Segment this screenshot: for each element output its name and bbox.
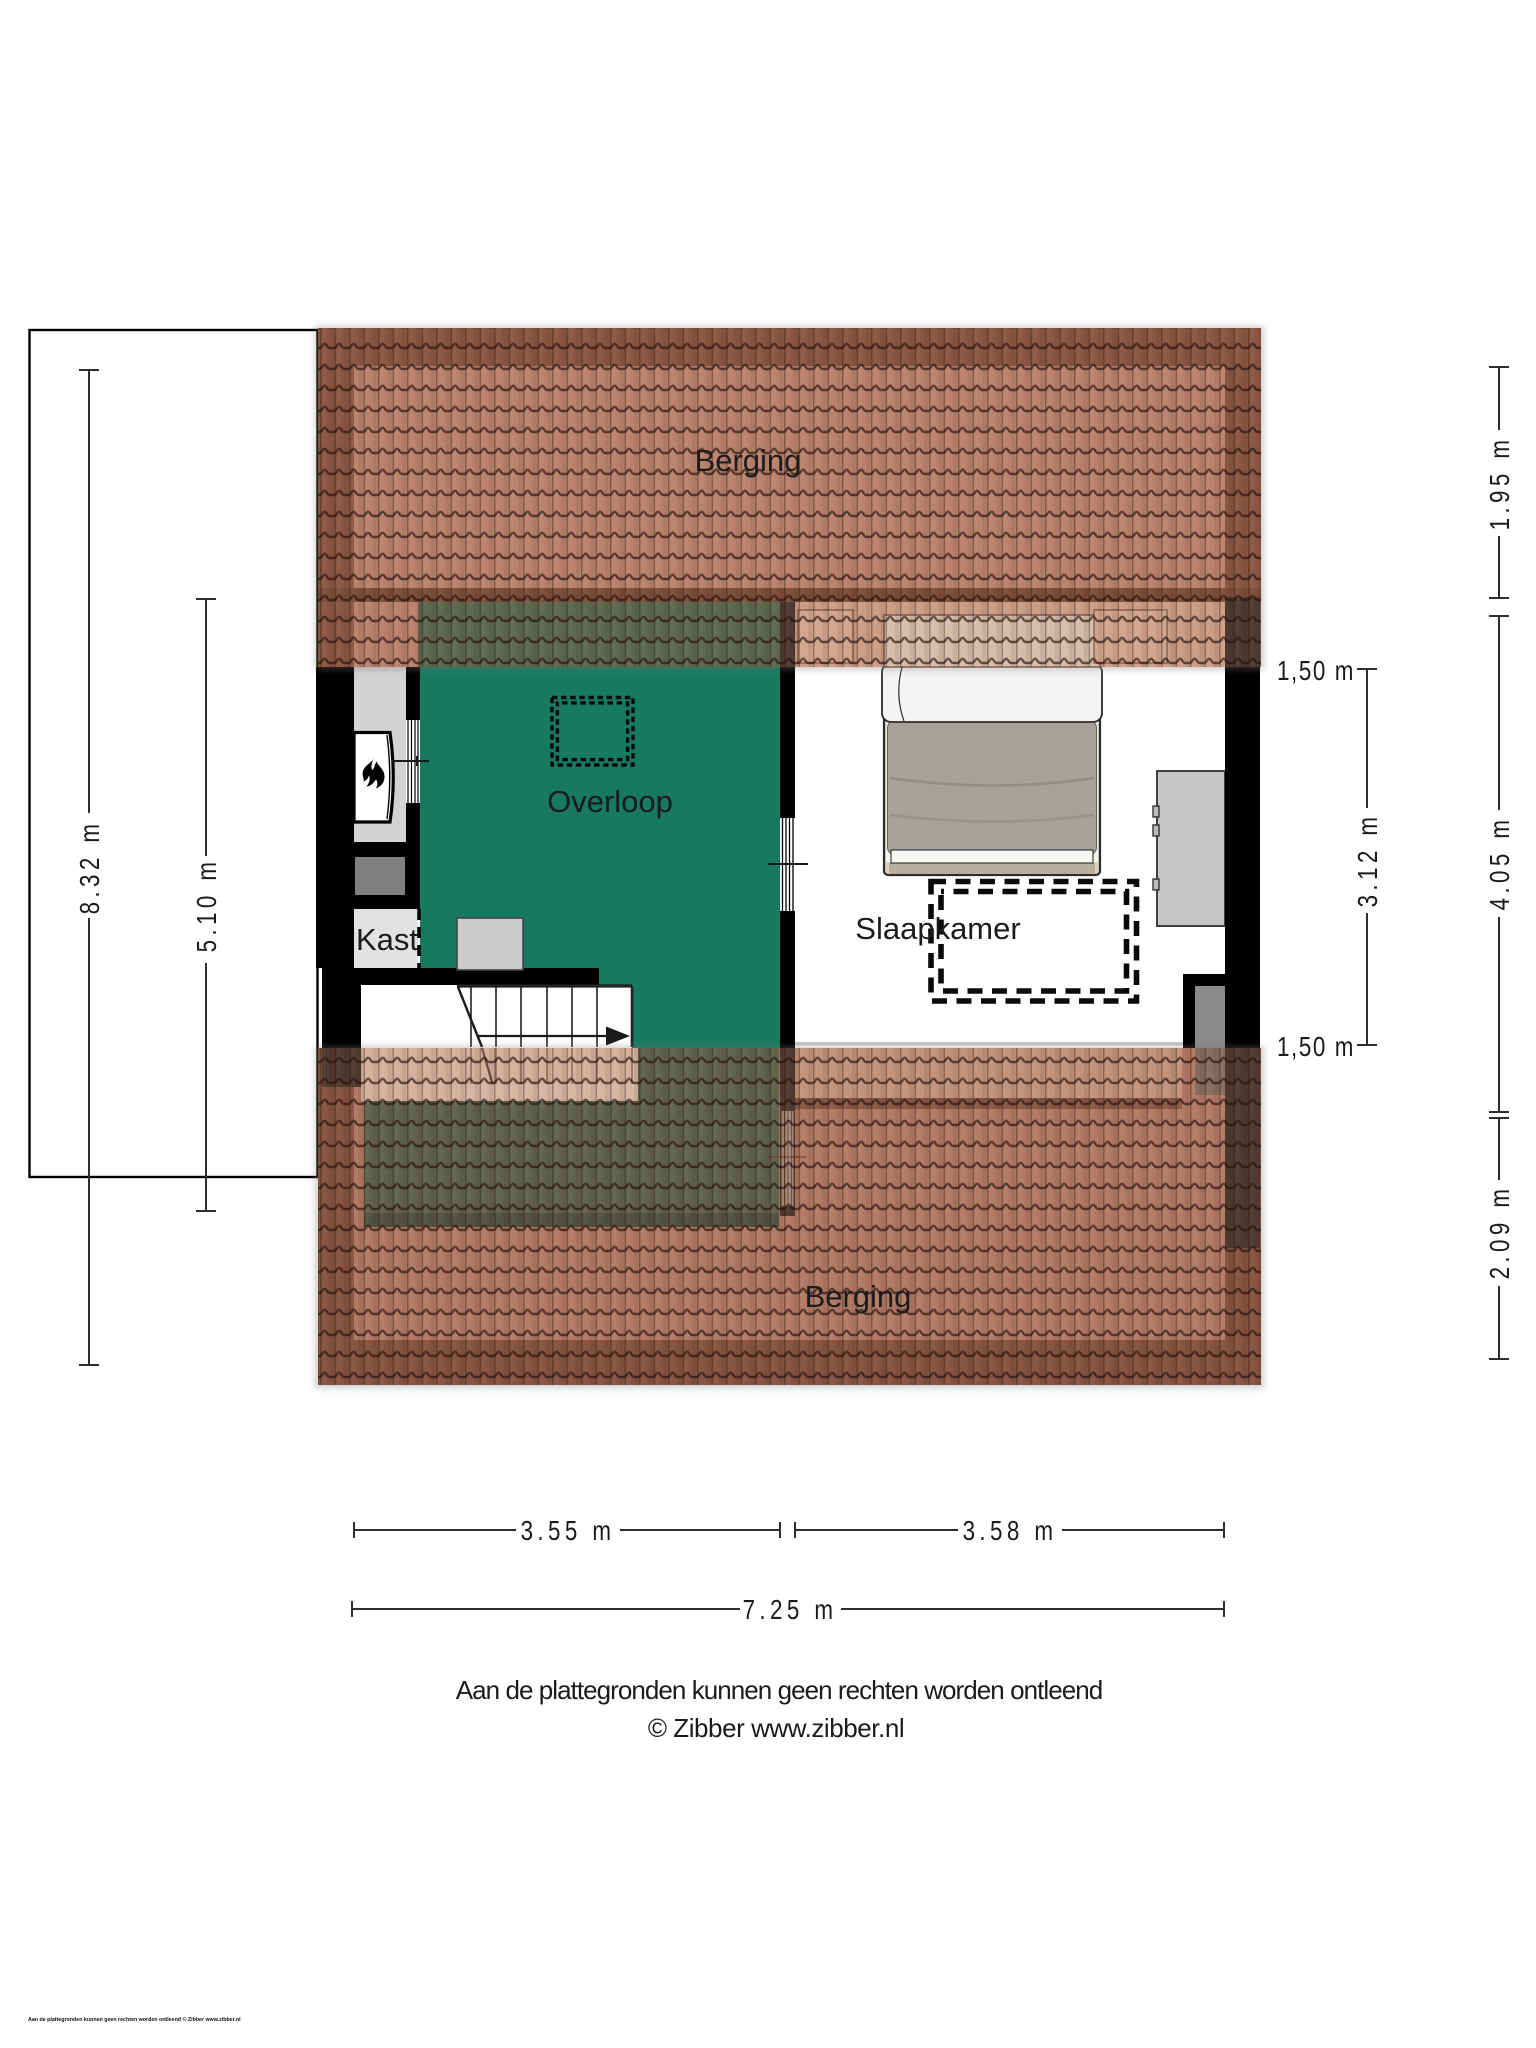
svg-text:1,50 m: 1,50 m (1277, 1032, 1355, 1063)
svg-text:2.09 m: 2.09 m (1485, 1185, 1516, 1280)
svg-text:1.95 m: 1.95 m (1485, 436, 1516, 531)
svg-text:3.12 m: 3.12 m (1353, 813, 1384, 908)
svg-text:3.55 m: 3.55 m (521, 1516, 616, 1547)
svg-text:Berging: Berging (695, 443, 802, 478)
svg-text:7.25 m: 7.25 m (743, 1595, 838, 1626)
svg-text:Kast: Kast (356, 922, 418, 957)
svg-text:Aan de plattegronden kunnen ge: Aan de plattegronden kunnen geen rechten… (456, 1675, 1102, 1705)
svg-text:Aan de plattegronden kunnen ge: Aan de plattegronden kunnen geen rechten… (28, 2016, 241, 2023)
svg-text:Slaapkamer: Slaapkamer (855, 911, 1020, 946)
svg-text:3.58 m: 3.58 m (963, 1516, 1058, 1547)
svg-text:1,50 m: 1,50 m (1277, 656, 1355, 687)
svg-text:Berging: Berging (805, 1279, 912, 1314)
svg-text:© Zibber www.zibber.nl: © Zibber www.zibber.nl (648, 1713, 904, 1743)
svg-text:Overloop: Overloop (547, 784, 673, 819)
svg-text:8.32 m: 8.32 m (75, 820, 106, 915)
svg-text:5.10 m: 5.10 m (192, 858, 223, 953)
svg-text:4.05 m: 4.05 m (1485, 816, 1516, 911)
